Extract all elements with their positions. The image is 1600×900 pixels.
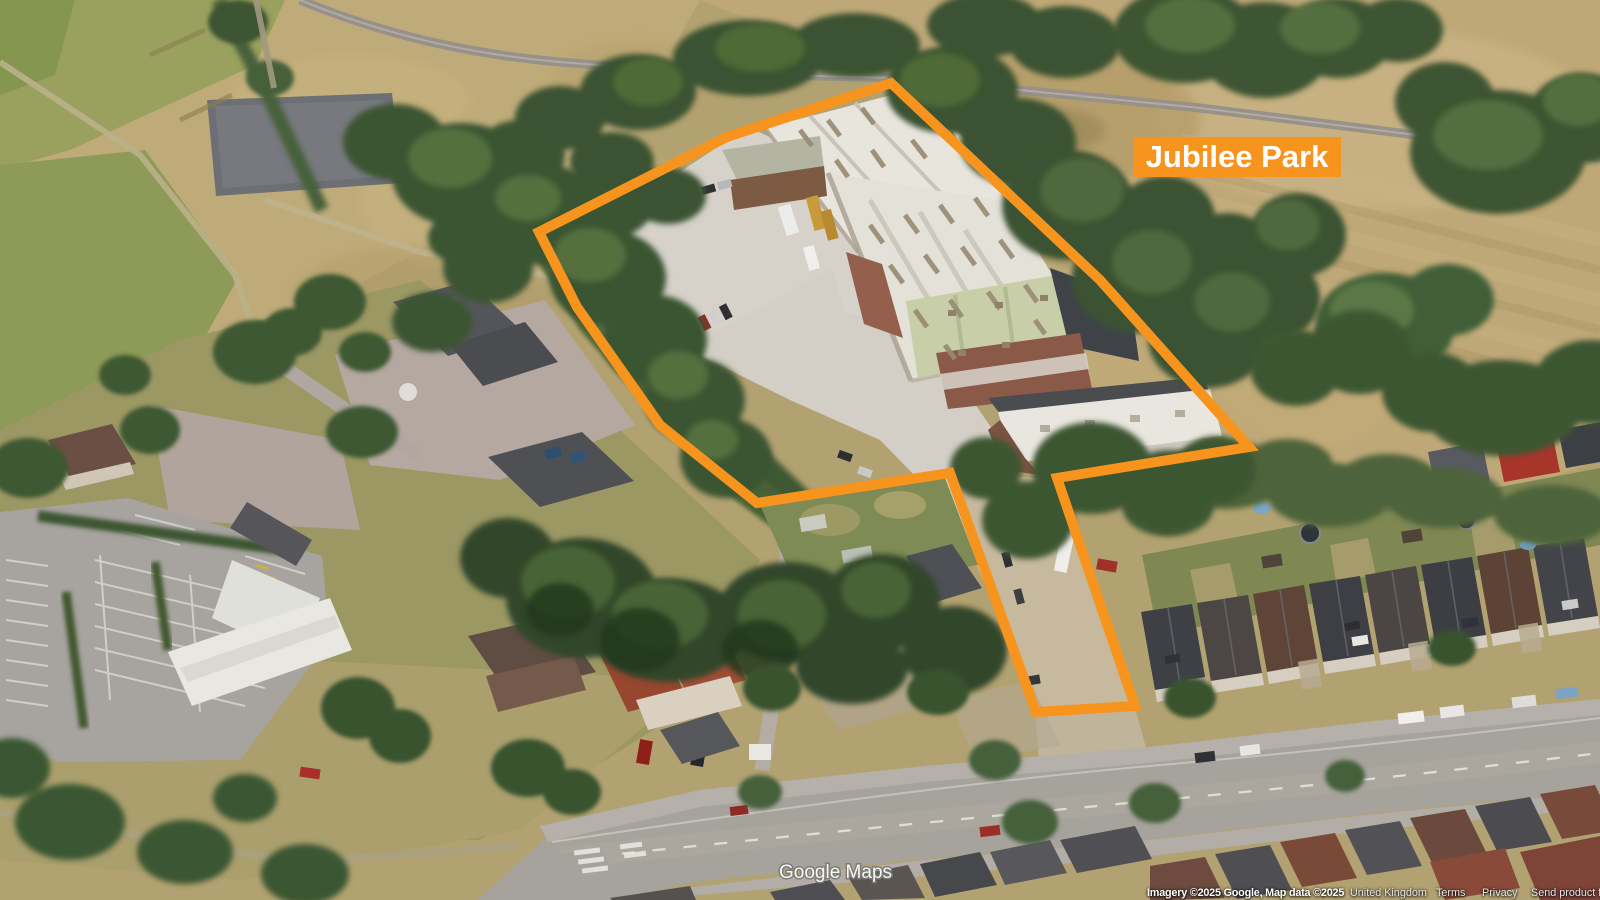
svg-text:Terms: Terms bbox=[1436, 887, 1466, 899]
svg-text:Privacy: Privacy bbox=[1482, 887, 1518, 899]
svg-text:Google Maps: Google Maps bbox=[779, 862, 892, 883]
svg-text:Imagery ©2025 Google, Map data: Imagery ©2025 Google, Map data ©2025 bbox=[1147, 887, 1344, 899]
svg-text:Jubilee Park: Jubilee Park bbox=[1146, 139, 1329, 174]
svg-text:Send product fe: Send product fe bbox=[1531, 887, 1600, 899]
svg-text:United Kingdom: United Kingdom bbox=[1350, 887, 1427, 899]
